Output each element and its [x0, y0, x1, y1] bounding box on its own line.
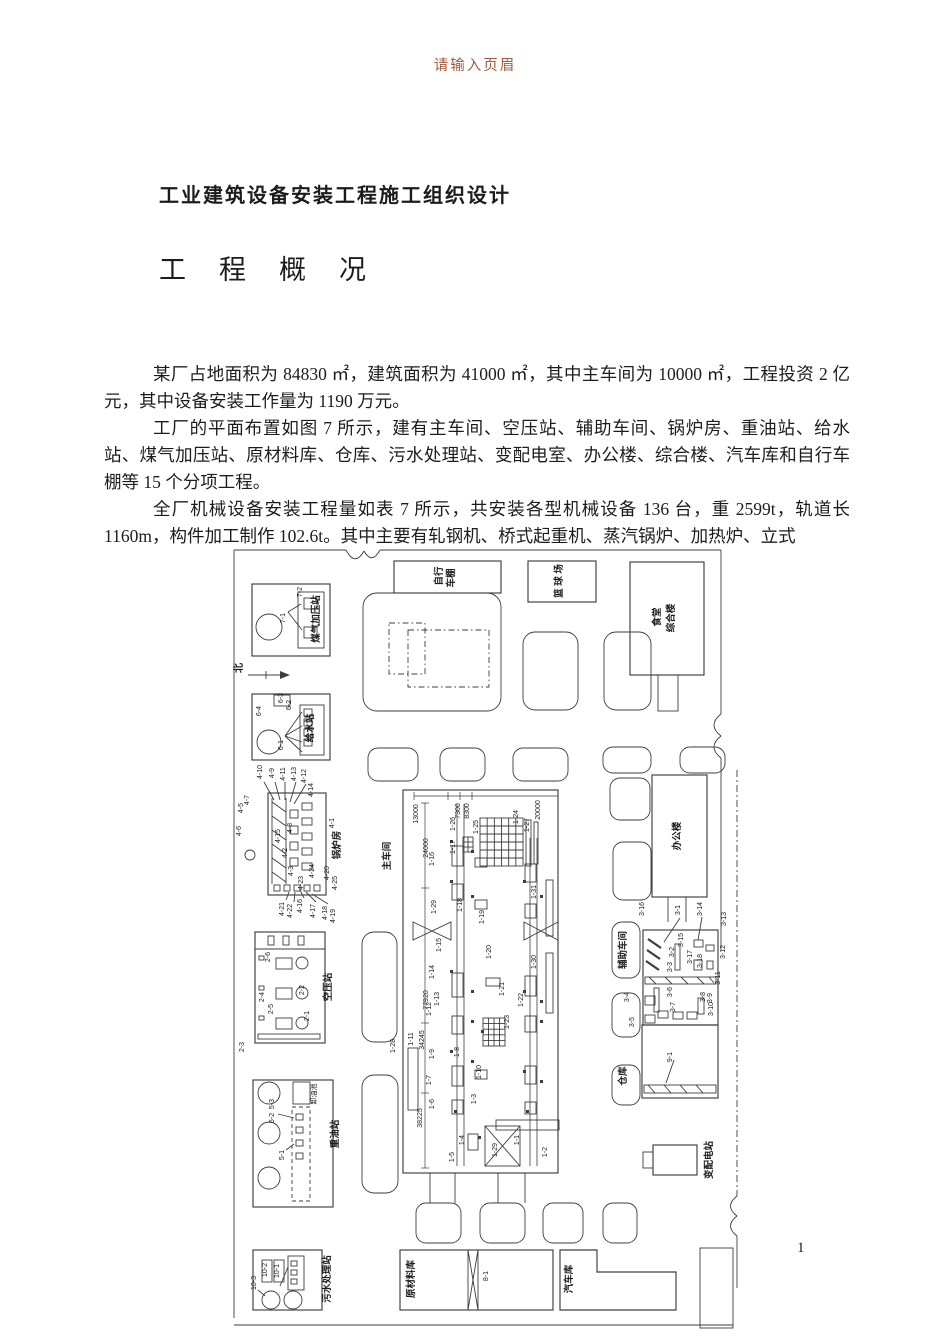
- svg-text:1-25: 1-25: [473, 820, 480, 834]
- svg-text:38225: 38225: [417, 1108, 424, 1128]
- svg-text:6-3: 6-3: [278, 693, 285, 703]
- svg-text:1-11: 1-11: [408, 1032, 415, 1046]
- svg-text:2-4: 2-4: [259, 992, 266, 1002]
- svg-text:7-2: 7-2: [297, 587, 304, 597]
- svg-text:4-1: 4-1: [329, 818, 336, 828]
- document-page: 请输入页眉 工业建筑设备安装工程施工组织设计 工 程 概 况 某厂占地面积为 8…: [0, 0, 950, 1344]
- svg-text:3-12: 3-12: [720, 945, 727, 959]
- page-header-placeholder[interactable]: 请输入页眉: [0, 54, 950, 75]
- svg-text:1-3: 1-3: [471, 1094, 478, 1104]
- svg-text:5-1: 5-1: [279, 1150, 286, 1160]
- svg-text:4-11: 4-11: [280, 767, 287, 781]
- svg-text:10-2: 10-2: [262, 1263, 269, 1277]
- svg-text:1-23: 1-23: [504, 1015, 511, 1029]
- svg-text:1-10: 1-10: [476, 1065, 483, 1079]
- building-sewage-treatment-station: [253, 1250, 322, 1310]
- svg-text:2-3: 2-3: [239, 1042, 246, 1052]
- svg-text:7-1: 7-1: [280, 613, 287, 623]
- svg-text:5-3: 5-3: [269, 1099, 276, 1109]
- svg-text:2-1: 2-1: [304, 1011, 311, 1021]
- svg-text:4-8: 4-8: [287, 823, 294, 833]
- svg-text:空压站: 空压站: [322, 972, 334, 1001]
- section-heading: 工 程 概 况: [159, 248, 369, 287]
- svg-text:2-5: 2-5: [268, 1004, 275, 1014]
- paragraph-plant-layout: 工厂的平面布置如图 7 所示，建有主车间、空压站、辅助车间、锅炉房、重油站、给水…: [104, 415, 850, 496]
- svg-text:3-5: 3-5: [629, 1017, 636, 1027]
- svg-text:3-7: 3-7: [670, 1002, 677, 1012]
- svg-text:3-4: 3-4: [624, 992, 631, 1002]
- svg-text:1-7: 1-7: [426, 1075, 433, 1085]
- svg-text:3-2: 3-2: [669, 947, 676, 957]
- svg-text:1-18: 1-18: [457, 898, 464, 912]
- svg-text:34245: 34245: [419, 1030, 426, 1050]
- svg-text:4-15: 4-15: [275, 829, 282, 843]
- svg-text:4-21: 4-21: [279, 902, 286, 916]
- svg-text:2-6: 2-6: [265, 952, 272, 962]
- svg-text:1-21: 1-21: [499, 982, 506, 996]
- svg-text:3-13: 3-13: [721, 912, 728, 926]
- svg-text:给水站: 给水站: [304, 713, 316, 742]
- svg-text:北: 北: [232, 663, 245, 673]
- svg-text:6-1: 6-1: [278, 740, 285, 750]
- svg-text:4-14: 4-14: [308, 783, 315, 797]
- svg-text:车棚: 车棚: [445, 568, 457, 587]
- svg-text:4-24: 4-24: [309, 864, 316, 878]
- svg-text:5-2: 5-2: [269, 1113, 276, 1123]
- svg-text:1-30: 1-30: [531, 955, 538, 969]
- svg-text:4-5: 4-5: [238, 803, 245, 813]
- svg-text:1-19: 1-19: [479, 910, 486, 924]
- svg-text:原材料库: 原材料库: [405, 1260, 417, 1299]
- svg-text:1-13: 1-13: [434, 992, 441, 1006]
- page-number: 1: [797, 1240, 805, 1257]
- svg-text:食堂: 食堂: [651, 607, 663, 628]
- svg-text:77920: 77920: [423, 990, 430, 1010]
- svg-text:7300: 7300: [455, 803, 462, 819]
- svg-text:1-5: 1-5: [449, 1152, 456, 1162]
- svg-text:1-22: 1-22: [518, 993, 525, 1007]
- svg-text:仓库: 仓库: [617, 1066, 629, 1087]
- svg-text:9-1: 9-1: [667, 1052, 674, 1062]
- svg-text:10-1: 10-1: [274, 1264, 281, 1278]
- svg-text:4-9: 4-9: [269, 768, 276, 778]
- svg-text:1-6: 1-6: [429, 1099, 436, 1109]
- plant-layout-figure: 煤气加压站给水站锅炉房空压站重油站污水处理站自行车棚篮 球 场食堂综合楼办公楼辅…: [228, 548, 768, 1330]
- svg-text:8300: 8300: [464, 803, 471, 819]
- svg-text:变配电站: 变配电站: [703, 1141, 715, 1180]
- svg-text:1-4: 1-4: [459, 1135, 466, 1145]
- paragraph-installation-quantity: 全厂机械设备安装工程量如表 7 所示，共安装各型机械设备 136 台，重 259…: [104, 496, 850, 550]
- svg-text:8-1: 8-1: [483, 1271, 490, 1281]
- svg-text:主车间: 主车间: [381, 842, 393, 871]
- svg-text:1-14: 1-14: [429, 965, 436, 979]
- svg-text:1-17: 1-17: [450, 840, 457, 854]
- svg-text:4-25: 4-25: [332, 876, 339, 890]
- svg-text:锅炉房: 锅炉房: [331, 831, 343, 860]
- svg-text:1-8: 1-8: [454, 1047, 461, 1057]
- svg-text:3-3: 3-3: [667, 962, 674, 972]
- svg-text:3-10: 3-10: [708, 1002, 715, 1016]
- svg-text:3-6: 3-6: [667, 987, 674, 997]
- building-warehouse: [642, 1025, 718, 1098]
- svg-text:3-1: 3-1: [675, 905, 682, 915]
- svg-text:1-31: 1-31: [531, 885, 538, 899]
- svg-text:1-1: 1-1: [514, 1135, 521, 1145]
- svg-text:4-6: 4-6: [236, 826, 243, 836]
- building-transformer-substation: [653, 1145, 697, 1175]
- svg-text:1-2: 1-2: [542, 1147, 549, 1157]
- svg-text:辅助车间: 辅助车间: [617, 931, 629, 969]
- svg-text:6-2: 6-2: [286, 700, 293, 710]
- svg-text:3-8: 3-8: [700, 992, 707, 1002]
- svg-text:汽车库: 汽车库: [563, 1264, 575, 1293]
- svg-text:1-28: 1-28: [390, 1039, 397, 1053]
- paragraph-overview: 某厂占地面积为 84830 ㎡，建筑面积为 41000 ㎡，其中主车间为 100…: [104, 361, 850, 415]
- svg-text:13000: 13000: [413, 804, 420, 824]
- svg-text:1-15: 1-15: [436, 938, 443, 952]
- svg-text:4-7: 4-7: [244, 795, 251, 805]
- svg-text:2-2: 2-2: [299, 985, 306, 995]
- svg-text:4-12: 4-12: [301, 769, 308, 783]
- svg-text:重油站: 重油站: [329, 1119, 341, 1148]
- svg-text:4-20: 4-20: [324, 866, 331, 880]
- svg-text:4-22: 4-22: [287, 904, 294, 918]
- svg-text:4-19: 4-19: [330, 909, 337, 923]
- svg-text:4-17: 4-17: [310, 904, 317, 918]
- svg-text:4-23: 4-23: [298, 876, 305, 890]
- svg-text:篮 球 场: 篮 球 场: [553, 564, 565, 599]
- svg-text:综合楼: 综合楼: [665, 603, 677, 632]
- svg-text:3-18: 3-18: [697, 954, 704, 968]
- svg-text:4-10: 4-10: [257, 765, 264, 779]
- document-title: 工业建筑设备安装工程施工组织设计: [159, 179, 511, 208]
- svg-text:污水处理站: 污水处理站: [321, 1255, 333, 1303]
- svg-text:1-24: 1-24: [513, 810, 520, 824]
- svg-text:1-27: 1-27: [524, 818, 531, 832]
- building-garage: [560, 1250, 676, 1310]
- svg-text:6-4: 6-4: [256, 706, 263, 716]
- svg-text:1-16: 1-16: [429, 852, 436, 866]
- svg-text:3-9: 3-9: [707, 993, 714, 1003]
- svg-text:卸油池: 卸油池: [309, 1084, 318, 1105]
- svg-text:1-20: 1-20: [486, 945, 493, 959]
- svg-text:4-3: 4-3: [288, 866, 295, 876]
- svg-text:4-18: 4-18: [322, 906, 329, 920]
- svg-text:4-2: 4-2: [282, 848, 289, 858]
- svg-text:4-13: 4-13: [291, 767, 298, 781]
- svg-text:1-29: 1-29: [492, 1143, 499, 1157]
- svg-text:4-16: 4-16: [297, 899, 304, 913]
- svg-text:1-29: 1-29: [431, 900, 438, 914]
- svg-text:自行: 自行: [433, 566, 445, 586]
- svg-text:3-14: 3-14: [697, 902, 704, 916]
- svg-text:24000: 24000: [423, 838, 430, 858]
- svg-text:1-9: 1-9: [429, 1049, 436, 1059]
- svg-text:20000: 20000: [535, 800, 542, 820]
- svg-text:煤气加压站: 煤气加压站: [310, 595, 322, 643]
- plant-layout-figure-wrap: 煤气加压站给水站锅炉房空压站重油站污水处理站自行车棚篮 球 场食堂综合楼办公楼辅…: [228, 548, 768, 1330]
- svg-text:3-16: 3-16: [639, 902, 646, 916]
- svg-text:3-15: 3-15: [678, 933, 685, 947]
- svg-text:3-17: 3-17: [687, 950, 694, 964]
- svg-text:3-11: 3-11: [715, 971, 722, 985]
- svg-text:10-3: 10-3: [251, 1276, 258, 1290]
- svg-text:办公楼: 办公楼: [671, 821, 683, 850]
- body-text: 某厂占地面积为 84830 ㎡，建筑面积为 41000 ㎡，其中主车间为 100…: [104, 361, 850, 550]
